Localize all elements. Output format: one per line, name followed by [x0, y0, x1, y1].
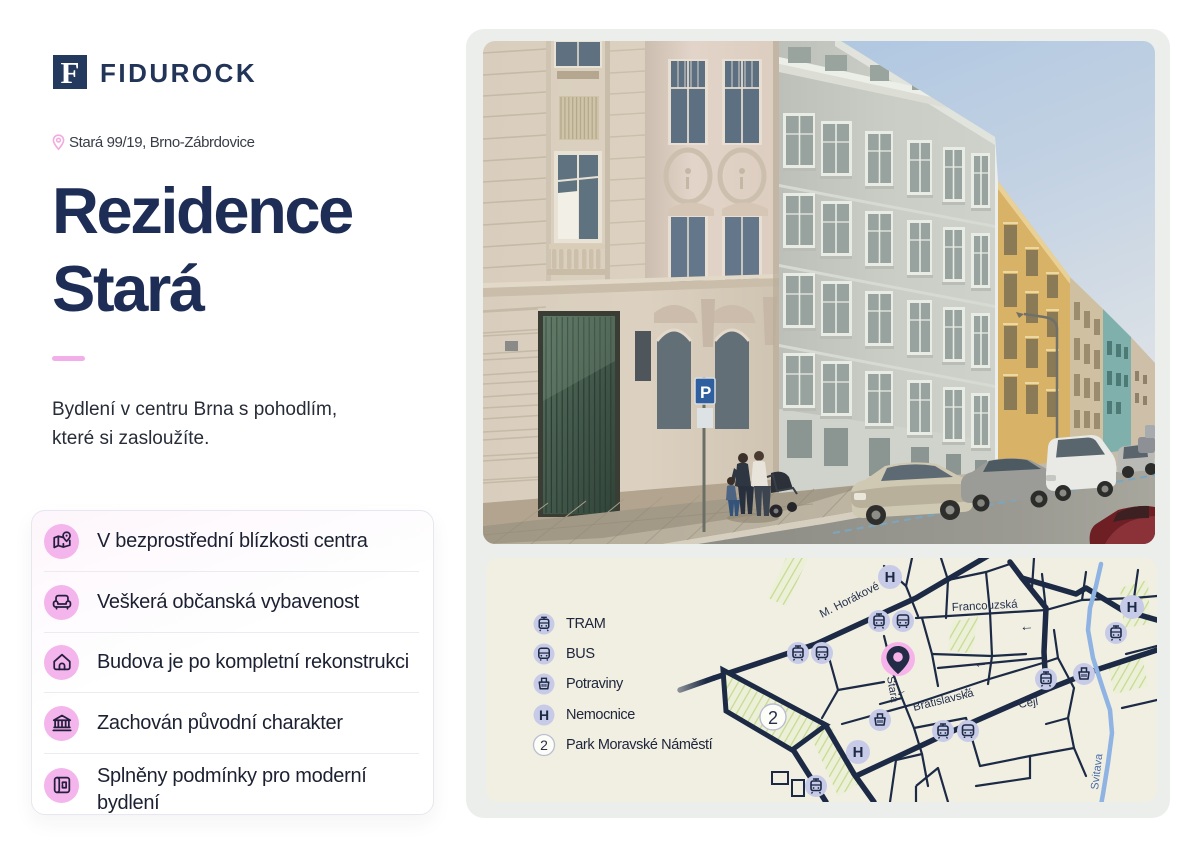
svg-text:←: ← [973, 654, 989, 671]
svg-text:H: H [885, 569, 896, 586]
svg-text:2: 2 [540, 737, 548, 753]
svg-text:H: H [1127, 599, 1138, 616]
svg-text:H: H [853, 744, 864, 761]
svg-text:↑: ↑ [963, 683, 970, 699]
svg-text:2: 2 [768, 708, 778, 728]
svg-text:H: H [539, 707, 549, 723]
svg-text:P: P [700, 383, 711, 402]
svg-text:←: ← [1019, 617, 1034, 634]
svg-text:Stará: Stará [884, 675, 901, 704]
svg-text:Cejl: Cejl [1018, 696, 1039, 711]
